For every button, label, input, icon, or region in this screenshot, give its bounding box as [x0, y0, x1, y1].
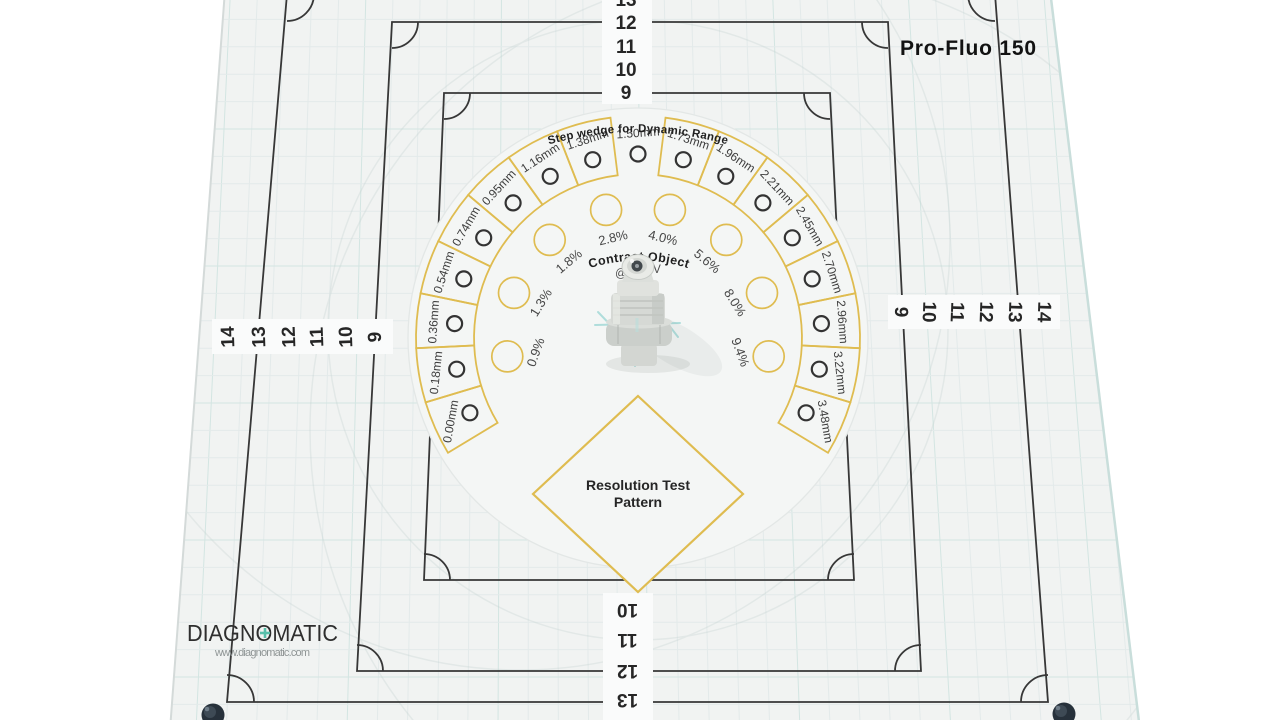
- object-tip-center: [635, 264, 639, 268]
- ruler-number: 13: [1004, 301, 1026, 323]
- ruler-number: 12: [617, 660, 638, 681]
- ruler-number: 14: [218, 326, 240, 348]
- ruler-number: 9: [365, 331, 386, 342]
- screw-glint: [205, 707, 210, 712]
- ruler-number: 14: [1033, 301, 1055, 323]
- object-shading: [652, 294, 664, 324]
- object-highlight: [613, 294, 620, 324]
- phantom-scene: 131211109101112131413121110991011121314 …: [0, 0, 1280, 720]
- object-glint: [630, 259, 634, 263]
- ruler-number: 9: [621, 83, 632, 104]
- object-collar: [617, 280, 659, 296]
- ruler-number: 13: [615, 0, 636, 11]
- ruler-number: 12: [279, 326, 301, 348]
- ruler-number: 11: [307, 326, 329, 347]
- product-title: Pro-Fluo 150: [900, 37, 1036, 60]
- ruler-number: 10: [336, 326, 358, 348]
- screw-glint: [1056, 706, 1061, 711]
- ruler-number: 11: [616, 37, 637, 58]
- ruler-number: 12: [615, 13, 636, 34]
- ruler-number: 10: [615, 60, 636, 81]
- ruler-number: 13: [617, 689, 638, 710]
- phantom-photo: 131211109101112131413121110991011121314 …: [0, 0, 1280, 720]
- logo-cross-icon: [264, 628, 267, 638]
- ruler-number: 12: [975, 301, 997, 323]
- ruler-number: 13: [249, 326, 271, 348]
- resolution-label-line1: Resolution Test: [586, 477, 690, 493]
- ruler-number: 10: [918, 301, 940, 323]
- ruler-number: 10: [617, 599, 638, 620]
- ruler-number: 9: [890, 306, 911, 317]
- ruler-number: 11: [946, 302, 968, 323]
- object-foot: [621, 344, 657, 366]
- resolution-label-line2: Pattern: [614, 494, 662, 510]
- ruler-number: 11: [617, 629, 638, 650]
- brand-website: www.diagnomatic.com: [214, 647, 310, 659]
